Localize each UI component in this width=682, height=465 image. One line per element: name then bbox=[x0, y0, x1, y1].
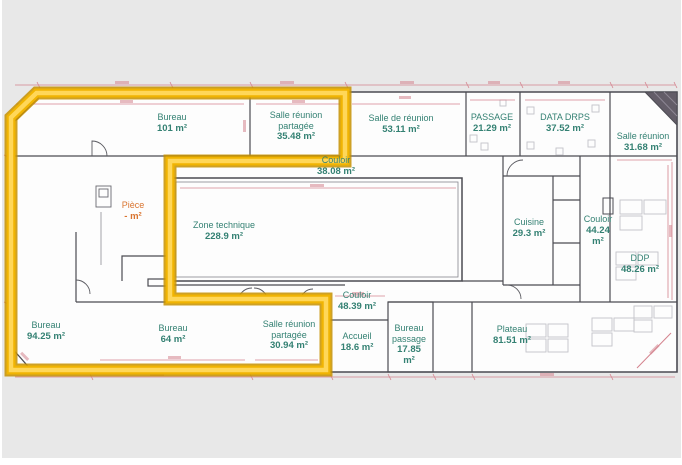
floor-plan-viewer: Bureau101 m²Salle réunionpartagée35.48 m… bbox=[0, 0, 682, 465]
floor-plan-canvas[interactable] bbox=[0, 0, 682, 465]
